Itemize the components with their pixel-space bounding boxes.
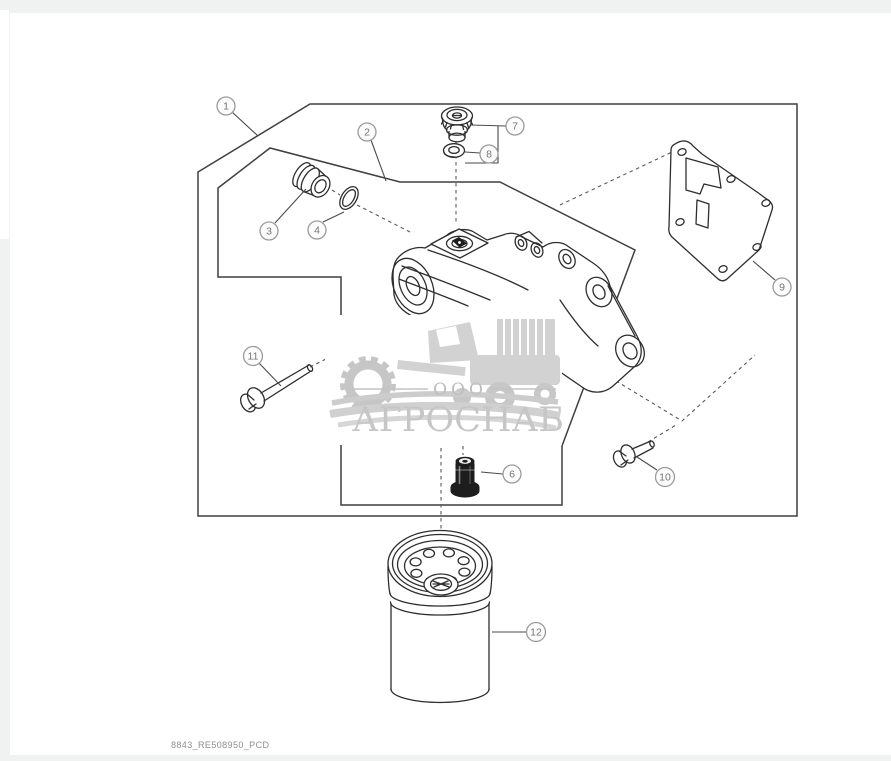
watermark-name: АГРОСНАБ (352, 400, 564, 440)
part-plug (289, 160, 335, 203)
callout-9[interactable]: 9 (773, 278, 791, 296)
image-code-caption: 8843_RE508950_PCD (171, 740, 269, 750)
part-o-ring (336, 183, 362, 212)
callout-8-label: 8 (486, 149, 492, 161)
parts-diagram: ООО АГРОСНАБ 1 2 3 4 (0, 0, 891, 761)
part-washer (444, 144, 465, 158)
callout-10[interactable]: 10 (656, 468, 675, 487)
callout-12-label: 12 (530, 627, 542, 639)
callout-4-label: 4 (314, 225, 320, 237)
part-bolt-long (238, 364, 314, 415)
callout-3[interactable]: 3 (260, 222, 278, 240)
callout-3-label: 3 (266, 226, 272, 238)
callout-10-label: 10 (659, 472, 671, 484)
callout-8[interactable]: 8 (480, 145, 498, 163)
callout-7[interactable]: 7 (506, 117, 524, 135)
callout-4[interactable]: 4 (308, 221, 326, 239)
callout-1[interactable]: 1 (217, 97, 235, 115)
callout-9-label: 9 (779, 282, 785, 294)
part-standpipe-fitting (451, 457, 480, 498)
callout-6-label: 6 (509, 469, 515, 481)
callout-2[interactable]: 2 (358, 123, 376, 141)
callout-7-label: 7 (512, 121, 518, 133)
part-gasket (669, 141, 773, 281)
part-filter-cartridge (388, 531, 492, 703)
watermark-prefix: ООО (433, 380, 487, 400)
callout-11-label: 11 (248, 351, 259, 363)
watermark: ООО АГРОСНАБ (325, 315, 564, 445)
callout-6[interactable]: 6 (503, 465, 521, 483)
part-cap-nut (442, 107, 473, 142)
callout-1-label: 1 (223, 101, 229, 113)
callout-11[interactable]: 11 (244, 347, 263, 366)
callout-2-label: 2 (364, 127, 370, 139)
callout-12[interactable]: 12 (527, 623, 546, 642)
